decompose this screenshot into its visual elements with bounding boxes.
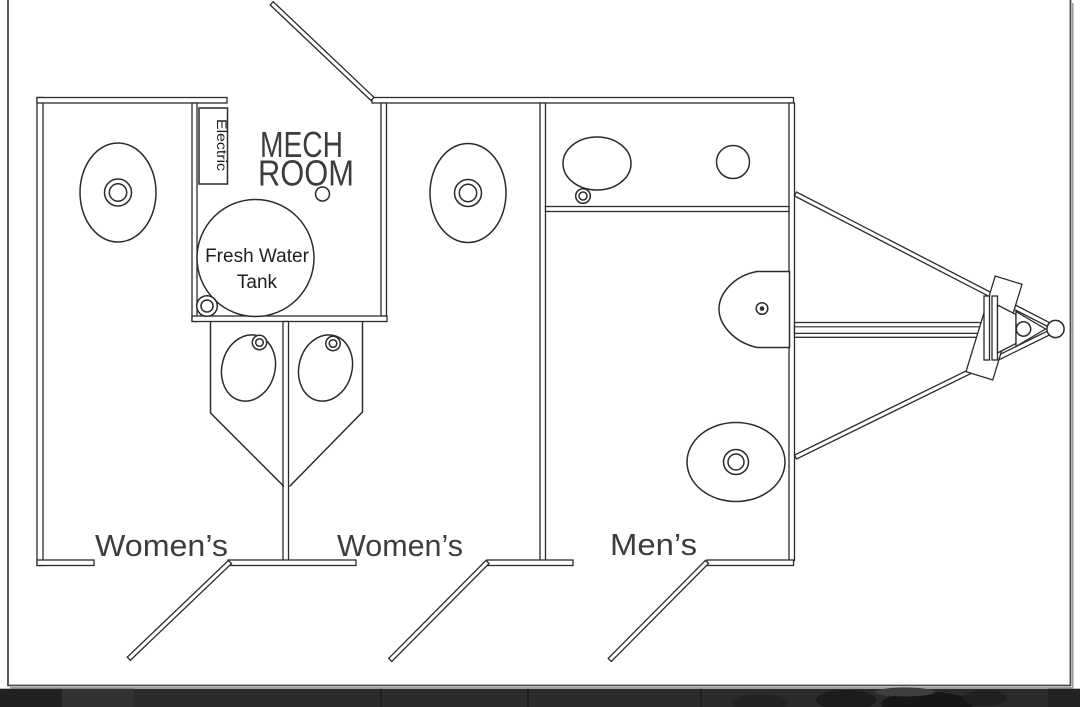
floor-plan-page: Electric MECH ROOM Fresh Water Tank <box>0 0 1080 707</box>
wall-womens-mens-divider <box>540 103 546 561</box>
bottom-bar-blob <box>963 690 1007 706</box>
wall-left <box>37 98 43 566</box>
wall-mech-left <box>192 103 197 322</box>
bottom-bar-blob <box>875 688 935 697</box>
wall-mech-bottom <box>192 316 387 322</box>
wall-bottom-4 <box>707 560 794 566</box>
label-mens: Men’s <box>610 527 697 562</box>
coupler-ball-circle <box>1047 320 1064 337</box>
bottom-bar <box>0 688 1080 707</box>
fresh-water-tank-label-line1: Fresh Water <box>205 246 309 267</box>
wall-womens-divider <box>283 322 289 561</box>
wall-top-left <box>37 98 227 104</box>
wall-bottom-3 <box>487 560 573 566</box>
electric-label: Electric <box>214 119 229 171</box>
floor-plan-drawing: Electric MECH ROOM Fresh Water Tank <box>0 0 1080 707</box>
jack-post-left <box>984 296 990 360</box>
label-womens-middle: Women’s <box>337 528 463 563</box>
mech-room-label-line2: ROOM <box>258 153 354 194</box>
jack-crank-circle <box>1016 322 1030 336</box>
wall-top-right <box>372 98 794 104</box>
stall-toilet-right-flush <box>326 336 340 350</box>
wall-bottom-1 <box>37 560 94 566</box>
stall-toilet-left-flush <box>252 335 266 349</box>
fresh-water-tank-label-line2: Tank <box>237 272 278 293</box>
hitch-tongue-bar <box>795 323 987 338</box>
jack-post-right <box>992 296 998 360</box>
label-womens-left: Women’s <box>95 528 228 563</box>
tank-outlet <box>197 296 218 317</box>
wall-mens-counter <box>546 207 790 212</box>
wall-mech-right <box>381 103 387 316</box>
sink-mens-drain <box>576 189 591 204</box>
urinal-drain-dot <box>760 306 765 311</box>
